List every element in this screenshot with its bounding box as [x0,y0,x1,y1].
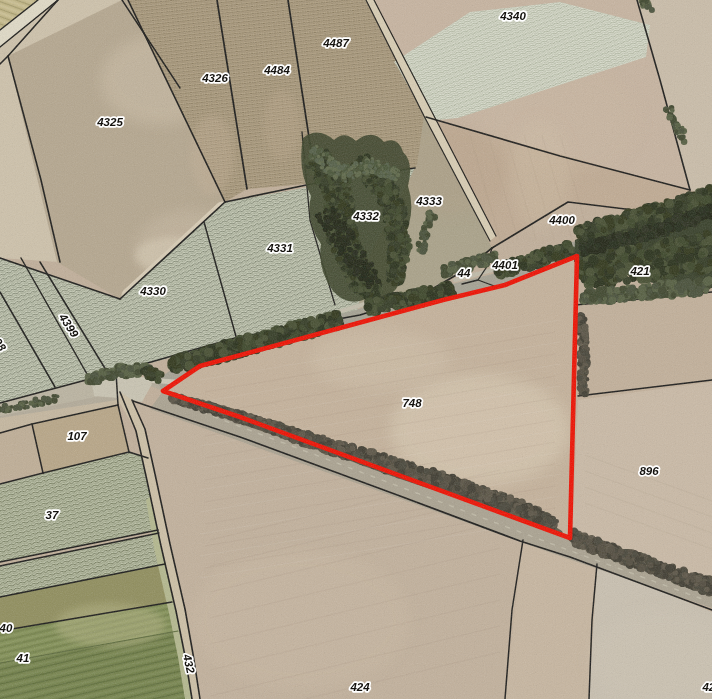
svg-text:4331: 4331 [266,242,293,254]
svg-text:41: 41 [16,652,30,664]
svg-text:4401: 4401 [491,259,518,271]
svg-text:4400: 4400 [548,214,575,226]
svg-text:424: 424 [701,681,712,693]
svg-text:4332: 4332 [352,210,379,222]
svg-text:4330: 4330 [139,285,166,297]
svg-text:40: 40 [0,622,13,634]
svg-text:896: 896 [639,465,659,477]
svg-text:4325: 4325 [96,116,123,128]
svg-text:4484: 4484 [263,64,290,76]
svg-text:37: 37 [46,509,59,521]
svg-text:107: 107 [67,430,87,442]
svg-text:748: 748 [402,397,422,409]
svg-text:4326: 4326 [201,72,228,84]
svg-text:44: 44 [457,267,471,279]
svg-text:424: 424 [349,681,370,693]
svg-text:4487: 4487 [322,37,349,49]
svg-text:4333: 4333 [415,195,442,207]
svg-text:4340: 4340 [499,10,526,22]
svg-text:421: 421 [629,265,649,277]
